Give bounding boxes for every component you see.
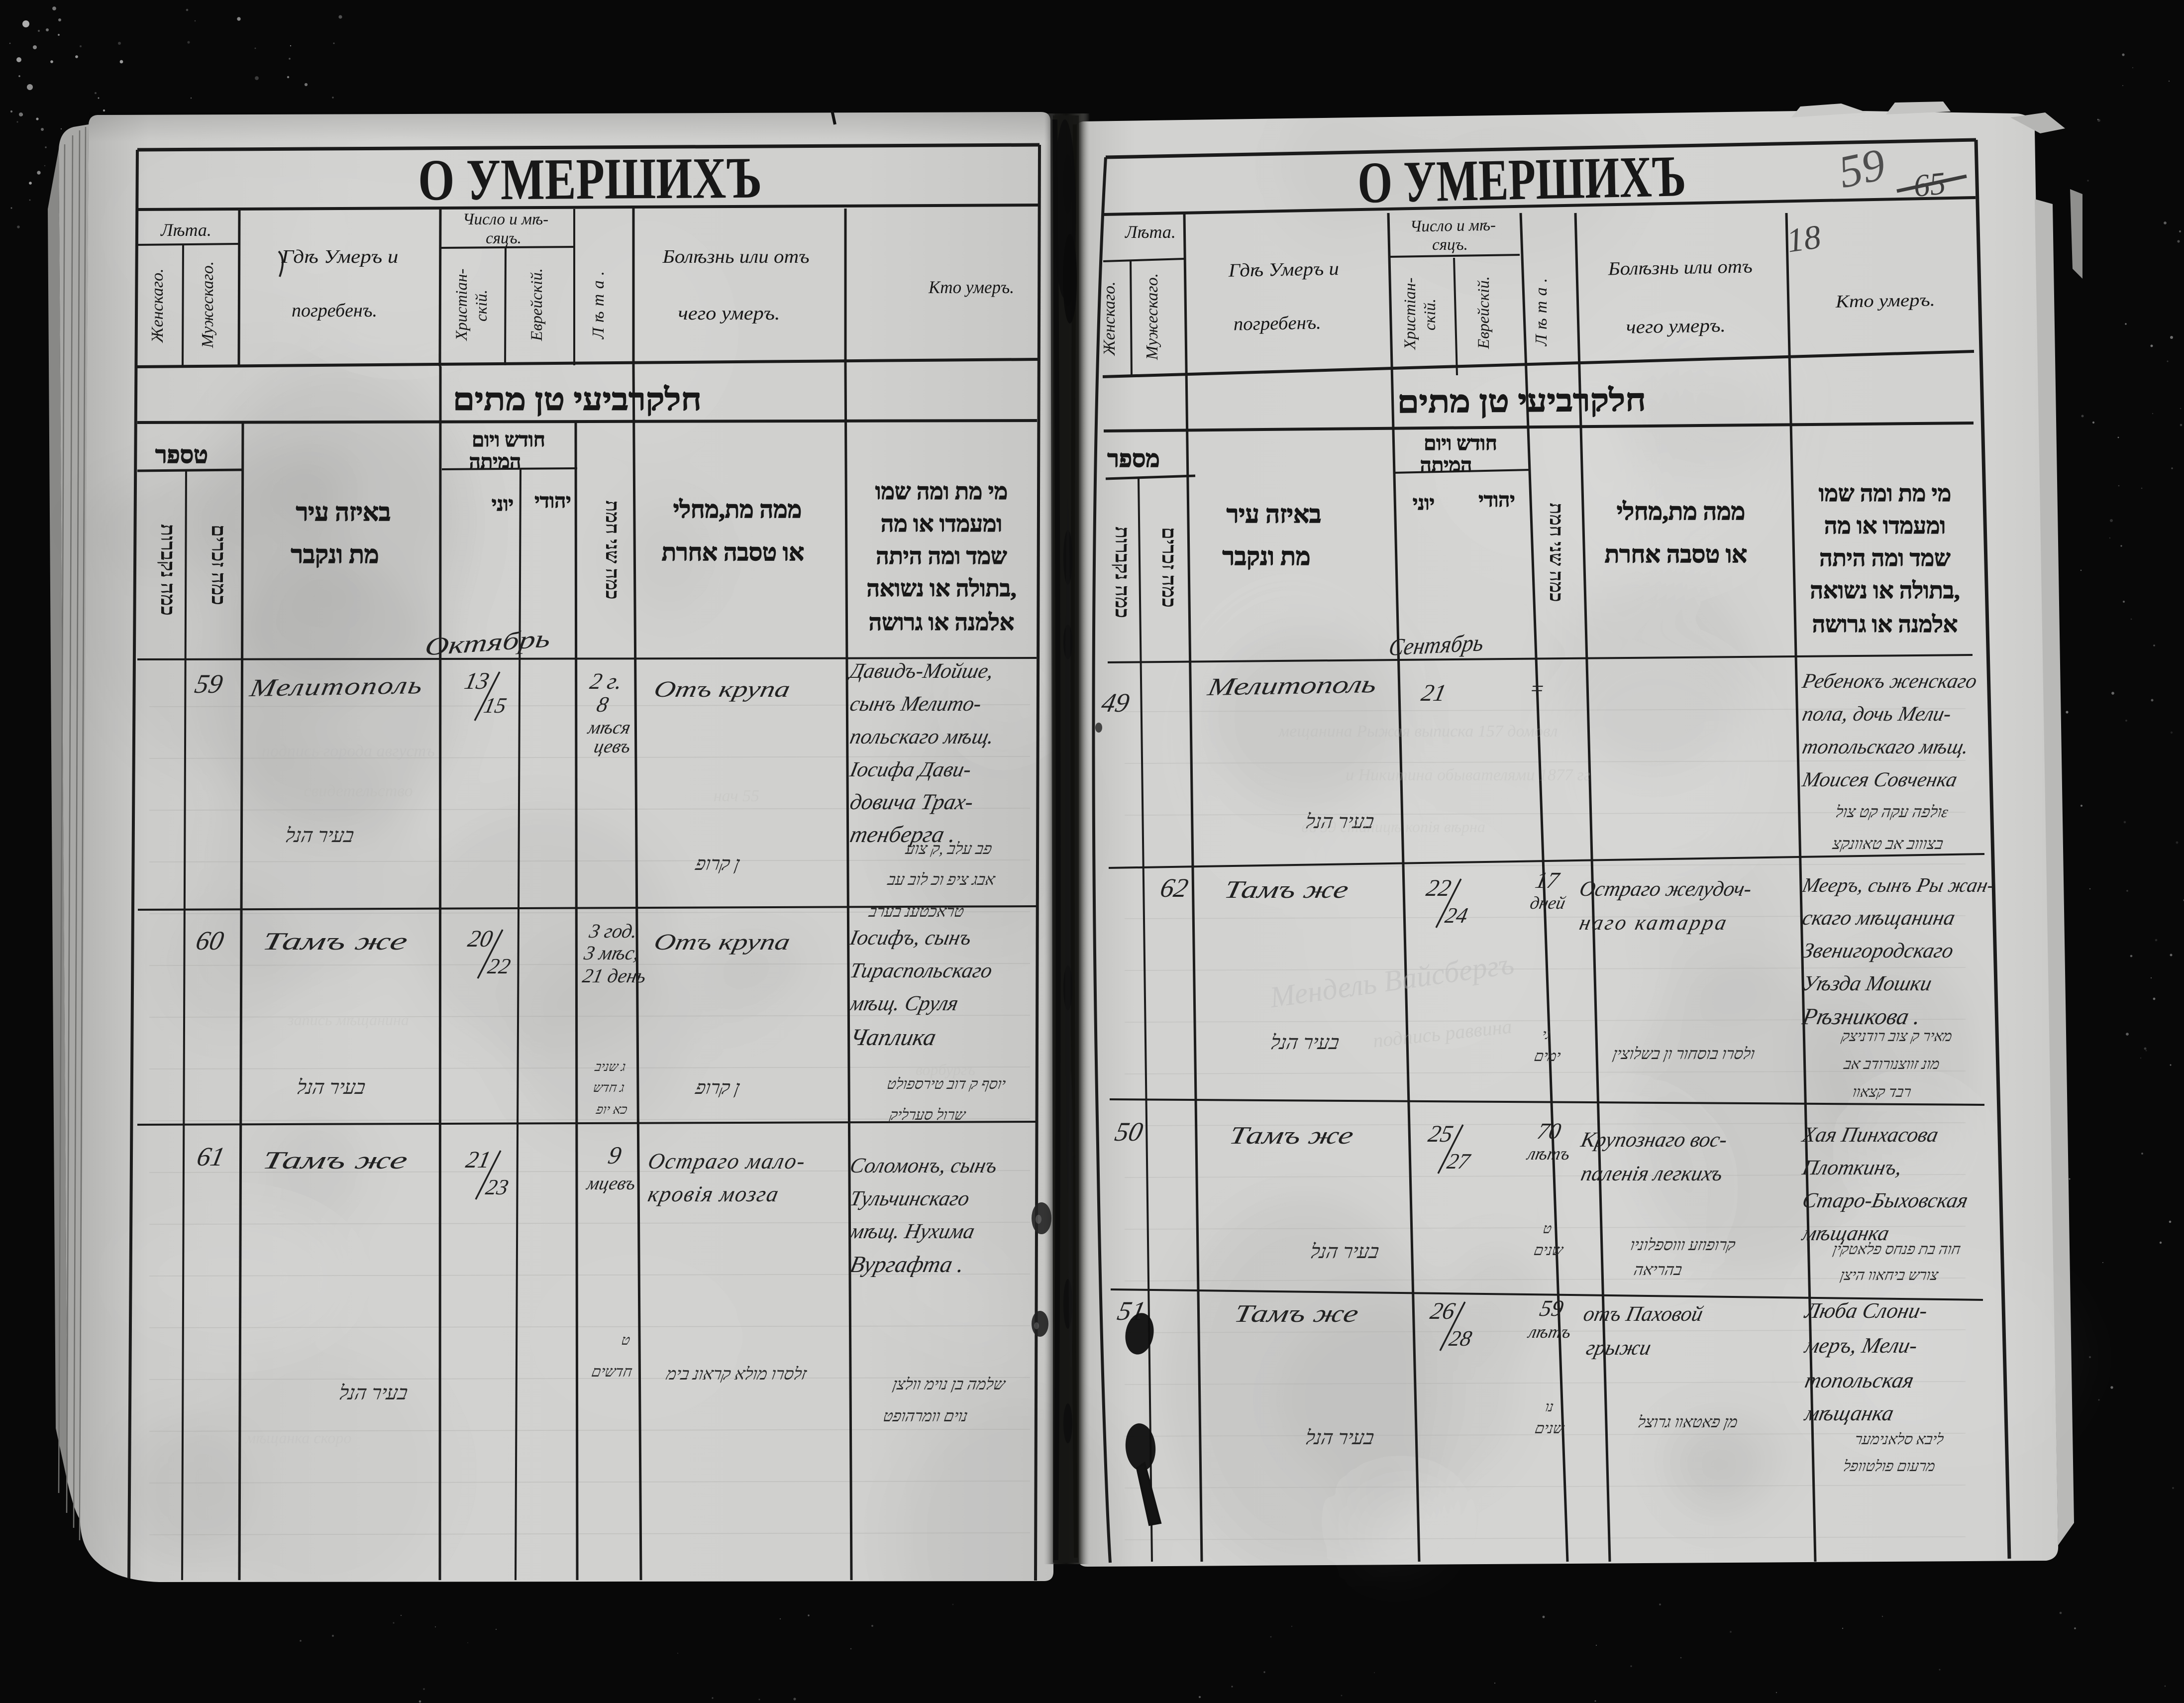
- svg-text:יוני: יוני: [492, 493, 514, 515]
- svg-text:2 г.: 2 г.: [588, 669, 624, 694]
- svg-text:בעיר הנל: בעיר הנל: [295, 1076, 367, 1098]
- svg-text:дней: дней: [1528, 893, 1567, 913]
- svg-text:המיתה: המיתה: [469, 450, 521, 473]
- svg-text:Еврейскій.: Еврейскій.: [528, 268, 546, 341]
- svg-text:мещанина Рыжая выписка 157 дом: мещанина Рыжая выписка 157 домовл: [1278, 722, 1558, 741]
- svg-text:פב עלב ,ק צוע: פב עלב ,ק צוע: [904, 840, 993, 857]
- svg-text:Люба Слони-: Люба Слони-: [1802, 1298, 1930, 1322]
- svg-text:יהודי: יהודי: [534, 490, 571, 512]
- svg-text:Мужескаго.: Мужескаго.: [1143, 273, 1161, 360]
- svg-text:ג שניב: ג שניב: [593, 1060, 626, 1074]
- svg-text:חלקרביעי טן מתים: חלקרביעי טן מתים: [1397, 384, 1647, 420]
- svg-text:ליבא סלאנימער: ליבא סלאנימער: [1854, 1431, 1945, 1448]
- svg-text:Гдѣ Умеръ и: Гдѣ Умеръ и: [281, 246, 398, 267]
- svg-text:חודש ויום: חודש ויום: [1424, 432, 1497, 454]
- svg-text:אלמנה או גרושה: אלמנה או גרושה: [1812, 612, 1958, 637]
- svg-text:טספר: טספר: [155, 442, 208, 468]
- svg-text:Лѣта.: Лѣта.: [160, 220, 211, 240]
- svg-text:מרעום פולטוופל: מרעום פולטוופל: [1842, 1458, 1937, 1475]
- svg-text:мѣщанка скоро: мѣщанка скоро: [245, 1429, 352, 1447]
- svg-text:Кто умеръ.: Кто умеръ.: [1835, 290, 1935, 312]
- svg-text:מי מת ומה שמו: מי מת ומה שמו: [1819, 481, 1951, 506]
- svg-text:ומעמדו או מה: ומעמדו או מה: [1824, 513, 1946, 538]
- svg-text:צורש ביחאוו היצן: צורש ביחאוו היצן: [1839, 1267, 1941, 1283]
- svg-text:Тамъ же: Тамъ же: [1227, 1122, 1356, 1149]
- svg-text:נוים וומרהופט: נוים וומרהופט: [882, 1407, 969, 1425]
- svg-text:או טסבה אחרת: או טסבה אחרת: [1605, 541, 1747, 568]
- svg-text:цевъ: цевъ: [592, 736, 632, 757]
- svg-text:Число и мѣ-: Число и мѣ-: [463, 211, 548, 228]
- svg-text:Женскаго.: Женскаго.: [148, 268, 167, 343]
- svg-text:כמה שני חמת: כמה שני חמת: [602, 500, 623, 599]
- svg-text:שלמה בן נוימ וולצן: שלמה בן נוימ וולצן: [891, 1375, 1007, 1393]
- svg-text:Мелитополь: Мелитополь: [1205, 670, 1379, 700]
- svg-text:сяцъ.: сяцъ.: [486, 229, 521, 247]
- svg-text:ולסרו בוסחור ון בשלוצין: ולסרו בוסחור ון בשלוצין: [1611, 1045, 1756, 1063]
- svg-text:כמה זכרים: כמה זכרים: [208, 525, 230, 605]
- svg-text:אלמנה או גרושה: אלמנה או גרושה: [869, 610, 1015, 635]
- svg-text:погребенъ.: погребенъ.: [292, 300, 377, 321]
- svg-text:О УМЕРШИХЪ: О УМЕРШИХЪ: [1357, 143, 1687, 215]
- svg-text:3 мѣс,: 3 мѣс,: [582, 942, 641, 964]
- svg-text:скій.: скій.: [1421, 299, 1439, 330]
- svg-text:ворбургъ: ворбургъ: [916, 1061, 975, 1078]
- svg-text:חודש ויום: חודש ויום: [472, 428, 545, 451]
- svg-text:רבד קצאוו: רבד קצאוו: [1851, 1083, 1912, 1100]
- svg-text:בעיר הנל: בעיר הנל: [1309, 1240, 1381, 1263]
- svg-text:ממה מת,מחלי: ממה מת,מחלי: [673, 497, 802, 523]
- svg-text:мѣщ. Нухима: мѣщ. Нухима: [847, 1219, 977, 1243]
- svg-text:חוה בת פנחס פלאטקין: חוה בת פנחס פלאטקין: [1832, 1241, 1962, 1258]
- svg-text:כמה נקברות: כמה נקברות: [157, 524, 179, 616]
- svg-text:יוני: יוני: [1413, 492, 1435, 514]
- svg-text:и Никитина обывателями 1877 гг: и Никитина обывателями 1877 гг: [1346, 766, 1590, 784]
- svg-text:Іосифъ, сынъ: Іосифъ, сынъ: [847, 926, 974, 949]
- svg-text:топольская: топольская: [1803, 1368, 1916, 1392]
- svg-text:כמה נקברות: כמה נקברות: [1111, 527, 1134, 618]
- svg-text:בעיר הנל: בעיר הנל: [284, 824, 356, 847]
- svg-text:קרופוזע וווספלוניו: קרופוזע וווספלוניו: [1629, 1236, 1737, 1254]
- svg-text:сынъ Мелито-: сынъ Мелито-: [848, 692, 984, 715]
- svg-text:Тамъ же: Тамъ же: [260, 927, 411, 955]
- svg-text:ג חדש: ג חדש: [592, 1080, 625, 1095]
- svg-text:שמד ומה היתה: שמד ומה היתה: [876, 543, 1007, 569]
- svg-text:сяцъ.: сяцъ.: [1432, 236, 1468, 254]
- svg-text:довича Трах-: довича Трах-: [848, 789, 976, 814]
- svg-text:лѣтъ: лѣтъ: [1525, 1144, 1572, 1164]
- svg-text:Тамъ же: Тамъ же: [260, 1146, 411, 1173]
- svg-text:Звенигородскаго: Звенигородскаго: [1800, 939, 1956, 962]
- svg-text:меръ, Мели-: меръ, Мели-: [1802, 1333, 1920, 1357]
- svg-text:ומעמדו או מה: ומעמדו או מה: [881, 511, 1002, 536]
- svg-text:ן קרופ: ן קרופ: [694, 853, 741, 874]
- svg-text:או טסבה אחרת: או טסבה אחרת: [662, 539, 804, 566]
- svg-text:שמד ומה היתה: שמד ומה היתה: [1819, 545, 1951, 571]
- svg-text:лѣтъ: лѣтъ: [1526, 1322, 1573, 1342]
- svg-text:מן פאטאוו גרוצל: מן פאטאוו גרוצל: [1637, 1413, 1739, 1431]
- svg-text:погребенъ.: погребенъ.: [1233, 312, 1321, 334]
- svg-text:בעיר הנל: בעיר הנל: [1304, 1426, 1376, 1449]
- svg-text:Женскаго.: Женскаго.: [1100, 281, 1119, 356]
- svg-text:בעיר הנל: בעיר הנל: [1269, 1031, 1341, 1054]
- svg-text:ימים: ימים: [1533, 1048, 1562, 1064]
- svg-text:Лѣта.: Лѣта.: [589, 266, 608, 339]
- svg-text:ן קרופ: ן קרופ: [694, 1077, 741, 1098]
- svg-text:שרול סערליק: שרול סערליק: [888, 1106, 967, 1123]
- svg-text:Соломонъ, сынъ: Соломонъ, сынъ: [848, 1154, 999, 1177]
- svg-text:Остраго желудоч-: Остраго желудоч-: [1577, 877, 1754, 900]
- svg-text:Мужескаго.: Мужескаго.: [199, 261, 217, 348]
- svg-text:Вургафта .: Вургафта .: [848, 1252, 967, 1277]
- svg-text:грыжи: грыжи: [1584, 1336, 1653, 1359]
- svg-text:בתולה או נשואה,: בתולה או נשואה,: [866, 576, 1016, 601]
- svg-text:Тамъ же: Тамъ же: [1232, 1299, 1361, 1327]
- svg-text:нач 55: нач 55: [714, 787, 759, 805]
- svg-text:Рѣзникова .: Рѣзникова .: [1800, 1004, 1923, 1029]
- svg-text:отъ Паховой: отъ Паховой: [1581, 1302, 1705, 1325]
- svg-text:Лѣта.: Лѣта.: [1532, 273, 1551, 346]
- svg-text:Тамъ же: Тамъ же: [1222, 875, 1352, 903]
- svg-text:18: 18: [1784, 217, 1823, 260]
- svg-text:כמה שני חמת: כמה שני חמת: [1546, 503, 1566, 602]
- svg-text:Лѣта.: Лѣта.: [1125, 222, 1176, 242]
- svg-text:запись мѣщанина: запись мѣщанина: [287, 1011, 409, 1029]
- svg-text:польскаго мѣщ.: польскаго мѣщ.: [848, 725, 996, 748]
- svg-text:בצוווב אב טאוונקצ: בצוווב אב טאוונקצ: [1831, 835, 1945, 852]
- svg-text:пола, дочь Мели-: пола, дочь Мели-: [1800, 702, 1954, 725]
- svg-text:топольскаго мѣщ.: топольскаго мѣщ.: [1800, 735, 1971, 758]
- svg-text:חדשים: חדשים: [590, 1363, 633, 1380]
- svg-text:Моисея Совченка: Моисея Совченка: [1800, 768, 1960, 791]
- svg-text:чего умеръ.: чего умеръ.: [1626, 315, 1726, 337]
- svg-text:Остраго мало-: Остраго мало-: [646, 1148, 809, 1173]
- svg-text:мѣщанка: мѣщанка: [1802, 1400, 1896, 1425]
- svg-text:Старо-Быховская: Старо-Быховская: [1800, 1188, 1970, 1212]
- svg-text:כמה זכרים: כמה זכרים: [1158, 527, 1180, 608]
- svg-text:чего умеръ.: чего умеръ.: [678, 303, 780, 324]
- svg-text:Давидъ-Мойше,: Давидъ-Мойше,: [846, 659, 996, 682]
- svg-text:мцевъ: мцевъ: [584, 1173, 638, 1194]
- svg-text:Плоткинъ,: Плоткинъ,: [1800, 1156, 1904, 1179]
- svg-text:יהודי: יהודי: [1478, 489, 1515, 511]
- svg-text:подпись города августъ: подпись города августъ: [262, 742, 435, 760]
- svg-text:21 день: 21 день: [581, 964, 648, 987]
- svg-text:Хая Пинхасова: Хая Пинхасова: [1799, 1123, 1941, 1146]
- svg-text:המיתה: המיתה: [1420, 454, 1472, 476]
- svg-text:Христіан-: Христіан-: [1401, 278, 1419, 351]
- svg-text:כא יופ: כא יופ: [595, 1102, 628, 1117]
- svg-text:въ 59 станицѣ копія вѣрна: въ 59 станицѣ копія вѣрна: [1301, 818, 1485, 836]
- svg-text:Гдѣ Умеръ и: Гдѣ Умеръ и: [1228, 258, 1339, 281]
- svg-text:ממה מת,מחלי: ממה מת,מחלי: [1617, 499, 1745, 525]
- svg-text:Кто умеръ.: Кто умеръ.: [928, 277, 1014, 297]
- svg-text:Болѣзнь или отъ: Болѣзнь или отъ: [662, 246, 809, 267]
- svg-text:Іосифа Дави-: Іосифа Дави-: [847, 757, 974, 781]
- svg-text:שנים: שנים: [1533, 1242, 1565, 1259]
- svg-text:3 год.: 3 год.: [587, 920, 639, 942]
- svg-text:חלקרביעי טן מתים: חלקרביעי טן מתים: [453, 383, 702, 417]
- svg-text:שנים: שנים: [1534, 1420, 1566, 1437]
- svg-text:Уѣзда Мошки: Уѣзда Мошки: [1800, 971, 1934, 995]
- svg-text:מי מת ומה שמו: מי מת ומה שמו: [875, 479, 1008, 504]
- svg-text:мѣщ. Сруля: мѣщ. Сруля: [847, 991, 960, 1015]
- svg-text:באיזה עיר: באיזה עיר: [296, 498, 391, 526]
- svg-text:паленія легкихъ: паленія легкихъ: [1579, 1162, 1725, 1185]
- svg-text:Мелитополь: Мелитополь: [247, 671, 426, 702]
- svg-text:скаго мѣщанина: скаго мѣщанина: [1800, 906, 1957, 929]
- svg-text:мѣся: мѣся: [585, 717, 632, 738]
- svg-text:מת ונקבר: מת ונקבר: [1222, 542, 1310, 570]
- svg-text:свидетельство: свидетельство: [304, 782, 413, 800]
- svg-text:скій.: скій.: [473, 290, 491, 321]
- svg-text:טראכטענ בערב: טראכטענ בערב: [867, 902, 966, 920]
- svg-text:ולפה עקה קט צולε: ולפה עקה קט צולε: [1834, 803, 1950, 821]
- svg-text:בתולה או נשואה,: בתולה או נשואה,: [1810, 578, 1960, 603]
- svg-text:Болѣзнь или отъ: Болѣзнь или отъ: [1607, 256, 1753, 279]
- svg-text:באיזה עיר: באיזה עיר: [1227, 500, 1321, 528]
- svg-text:О УМЕРШИХЪ: О УМЕРШИХЪ: [418, 145, 762, 213]
- svg-text:Ребенокъ женскаго: Ребенокъ женскаго: [1800, 669, 1979, 692]
- svg-text:אבג ציפ וכ לוב עב: אבג ציפ וכ לוב עב: [886, 870, 997, 888]
- svg-text:מת ונקבר: מת ונקבר: [291, 540, 379, 568]
- svg-text:Чаплика: Чаплика: [848, 1024, 938, 1050]
- svg-text:Сентябрь: Сентябрь: [1387, 630, 1485, 661]
- svg-text:Еврейскій.: Еврейскій.: [1475, 276, 1493, 349]
- svg-text:בהריאה: בהריאה: [1633, 1261, 1684, 1278]
- svg-text:בעיר הנל: בעיר הנל: [337, 1382, 410, 1404]
- svg-text:кровія мозга: кровія мозга: [646, 1181, 782, 1206]
- svg-text:מאיר ק צוב רודניצק: מאיר ק צוב רודניצק: [1840, 1028, 1954, 1045]
- svg-text:Тульчинскаго: Тульчинскаго: [848, 1186, 972, 1210]
- svg-text:Число и мѣ-: Число и мѣ-: [1410, 216, 1496, 236]
- svg-text:Мееръ, сынъ Ры жан-: Мееръ, сынъ Ры жан-: [1800, 873, 1997, 896]
- svg-text:наго катарра: наго катарра: [1577, 911, 1731, 934]
- svg-text:זלסרו מולא קראונ בימ: זלסרו מולא קראונ בימ: [665, 1365, 808, 1384]
- svg-text:מונ זווצנורודב אב: מונ זווצנורודב אב: [1842, 1056, 1941, 1072]
- svg-text:Христіан-: Христіан-: [453, 269, 471, 342]
- svg-text:Тираспольскаго: Тираспольскаго: [848, 958, 995, 982]
- svg-text:Крупознаго вос-: Крупознаго вос-: [1578, 1128, 1730, 1151]
- svg-text:Отъ крупа: Отъ крупа: [652, 930, 793, 955]
- svg-text:Отъ крупа: Отъ крупа: [652, 677, 793, 702]
- svg-text:מספר: מספר: [1107, 446, 1159, 472]
